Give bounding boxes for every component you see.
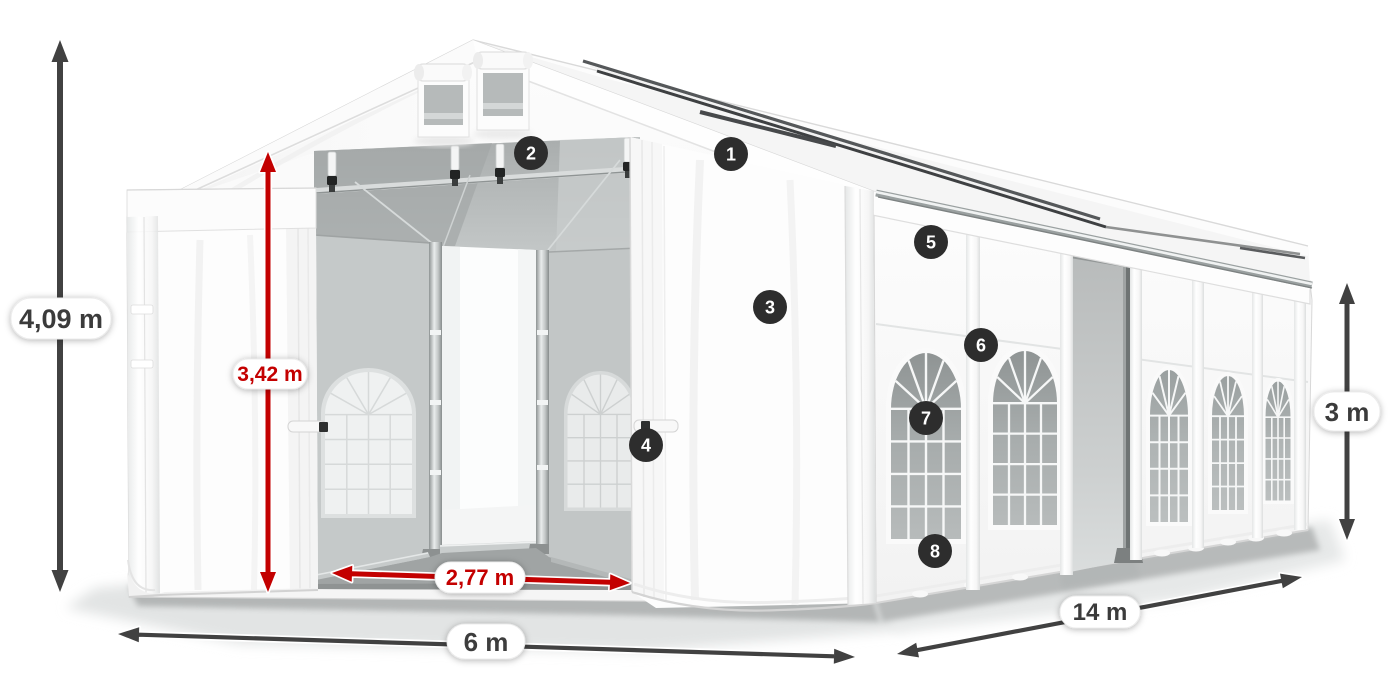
svg-text:6: 6 [976,335,986,355]
svg-text:3 m: 3 m [1325,397,1370,427]
svg-text:7: 7 [921,408,931,428]
svg-text:1: 1 [726,144,736,164]
svg-text:4,09 m: 4,09 m [19,304,103,334]
svg-text:2,77 m: 2,77 m [446,565,515,590]
svg-text:8: 8 [930,541,940,561]
svg-text:4: 4 [641,435,651,455]
svg-text:5: 5 [926,232,936,252]
svg-text:3,42 m: 3,42 m [237,363,302,386]
svg-text:3: 3 [765,297,775,317]
svg-text:2: 2 [526,143,536,163]
svg-text:14 m: 14 m [1073,599,1128,626]
svg-text:6 m: 6 m [464,627,509,657]
